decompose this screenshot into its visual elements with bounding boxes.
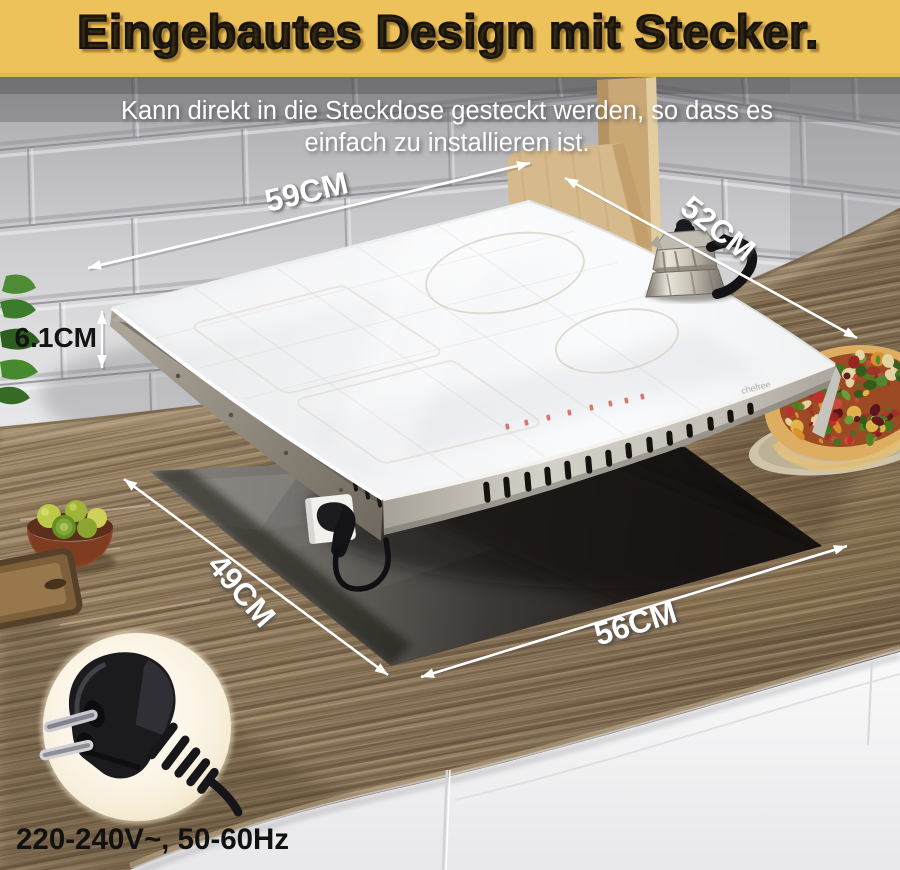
svg-text:220-240V~, 50-60Hz: 220-240V~, 50-60Hz bbox=[16, 823, 289, 856]
svg-text:6.1CM: 6.1CM bbox=[15, 322, 97, 353]
svg-text:Eingebautes Design mit Stecker: Eingebautes Design mit Stecker. bbox=[77, 5, 819, 58]
svg-text:einfach zu installieren ist.: einfach zu installieren ist. bbox=[305, 129, 590, 157]
svg-text:Kann direkt in die Steckdose g: Kann direkt in die Steckdose gesteckt we… bbox=[121, 97, 773, 125]
